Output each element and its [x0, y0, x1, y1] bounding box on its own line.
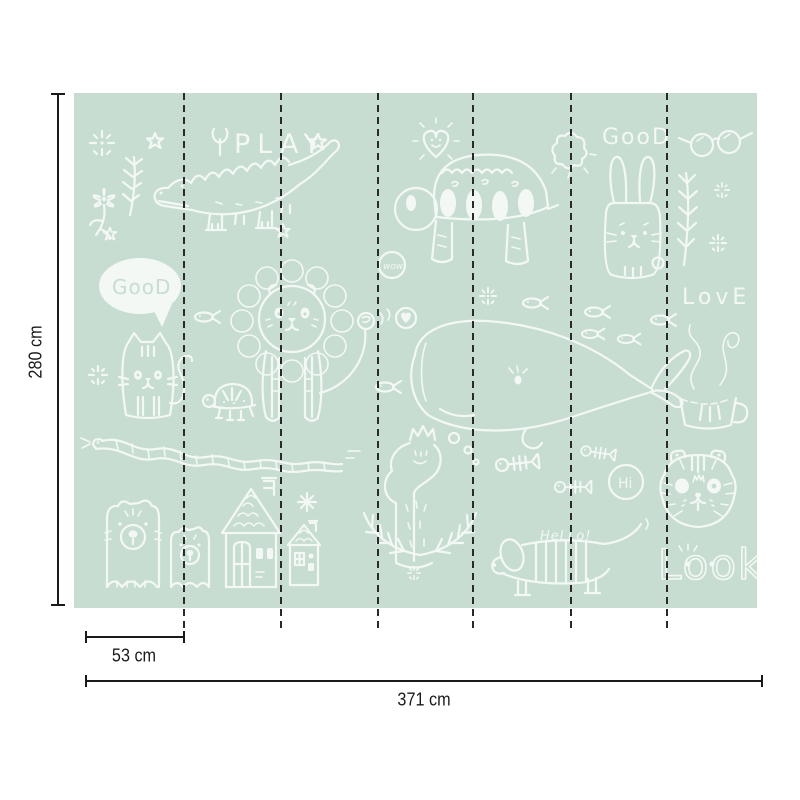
word-look: Look	[658, 540, 757, 589]
sparkle-icon	[89, 366, 107, 384]
lion-doodle	[231, 260, 390, 421]
glasses-icon	[679, 131, 752, 156]
small-turtle-doodle	[203, 384, 255, 420]
look-lettering: Look	[658, 540, 757, 589]
whale-doodle	[411, 321, 690, 449]
height-dimension-label: 280 cm	[26, 325, 47, 378]
panel-width-line	[86, 636, 184, 638]
product-size-diagram: PLAY	[0, 0, 800, 800]
branch-icon	[678, 173, 697, 265]
fish-school	[523, 297, 676, 344]
tiger-doodle	[660, 451, 735, 527]
wow-badge: wow	[379, 252, 405, 278]
panel-width-label: 53 cm	[112, 646, 156, 667]
sparkle-icon	[480, 288, 496, 304]
fishbone-icon	[555, 481, 592, 493]
panel-seam-line	[472, 93, 474, 630]
height-dimension-line	[57, 94, 59, 605]
panel-seam-line	[666, 93, 668, 630]
total-width-line	[86, 680, 762, 682]
house-doodle	[222, 478, 280, 587]
panel-seam-line	[280, 93, 282, 630]
bear-doodle	[171, 527, 209, 587]
sparkle-icon	[715, 183, 729, 197]
word-love: LovE	[682, 285, 750, 310]
word-wow: wow	[383, 262, 404, 272]
speech-bubble: GooD	[99, 258, 181, 327]
star-icon	[147, 133, 163, 148]
heart-face-icon	[413, 118, 459, 159]
word-hi: Hi	[618, 476, 632, 492]
bear-doodle	[105, 501, 161, 587]
sprout-icon	[213, 129, 228, 155]
panel-width-cap-right	[183, 631, 185, 643]
total-width-label: 371 cm	[397, 690, 450, 711]
hi-badge: Hi	[609, 465, 643, 499]
bubbles-icon	[449, 433, 479, 465]
flower-icon	[552, 133, 596, 178]
total-width-cap-right	[761, 675, 763, 687]
panel-width-cap-left	[85, 631, 87, 643]
fishbone-icon	[495, 454, 539, 472]
star-icon	[276, 224, 290, 237]
teacup-icon	[680, 325, 747, 429]
total-width-cap-left	[85, 675, 87, 687]
mural-artwork: PLAY	[74, 93, 757, 608]
snake-doodle	[81, 438, 360, 472]
branch-icon	[123, 157, 142, 215]
panel-seam-line	[377, 93, 379, 630]
sparkle-icon	[710, 235, 726, 251]
sunburst-icon	[90, 131, 114, 155]
fishbone-icon	[580, 445, 616, 461]
wallpaper-mural: PLAY	[74, 93, 757, 608]
height-dimension-cap-bottom	[51, 604, 65, 606]
word-good-top: GooD	[602, 125, 671, 150]
heart-badge	[396, 308, 416, 328]
word-good-bubble: GooD	[112, 275, 171, 299]
panel-seam-line	[183, 93, 185, 630]
house-doodle	[288, 521, 320, 585]
big-turtle-doodle	[395, 155, 558, 264]
height-dimension-cap-top	[51, 93, 65, 95]
rabbit-doodle	[605, 157, 664, 278]
cat-doodle	[119, 333, 192, 418]
fish-icon	[376, 381, 401, 393]
star-flower-icon	[298, 493, 316, 511]
panel-seam-line	[570, 93, 572, 630]
fish-icon	[195, 311, 220, 323]
